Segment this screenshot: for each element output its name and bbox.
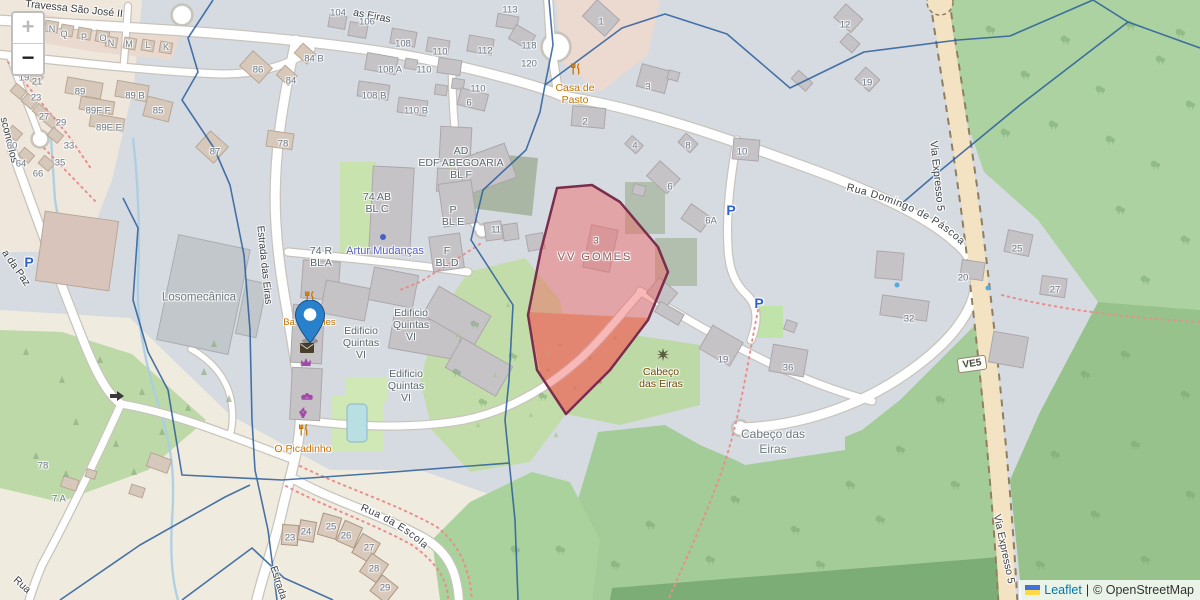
swimming-pool: [347, 404, 367, 442]
leaflet-link[interactable]: Leaflet: [1044, 580, 1082, 600]
map-viewport[interactable]: Rua Domingo de Páscoa Rua da Escola Trav…: [0, 0, 1200, 600]
osm-attribution: © OpenStreetMap: [1093, 580, 1194, 600]
map-marker[interactable]: [295, 300, 325, 344]
water-dot: [895, 283, 900, 288]
zoom-in-button[interactable]: +: [13, 13, 43, 43]
water-dot: [986, 286, 991, 291]
map-canvas: Rua Domingo de Páscoa Rua da Escola: [0, 0, 1200, 600]
ukraine-flag-icon: [1025, 585, 1040, 595]
zoom-out-button[interactable]: −: [13, 43, 43, 74]
attribution-separator: |: [1086, 580, 1089, 600]
poi-dot: [380, 234, 386, 240]
zoom-control: + −: [11, 11, 45, 76]
attribution-bar: Leaflet | © OpenStreetMap: [1019, 580, 1200, 600]
